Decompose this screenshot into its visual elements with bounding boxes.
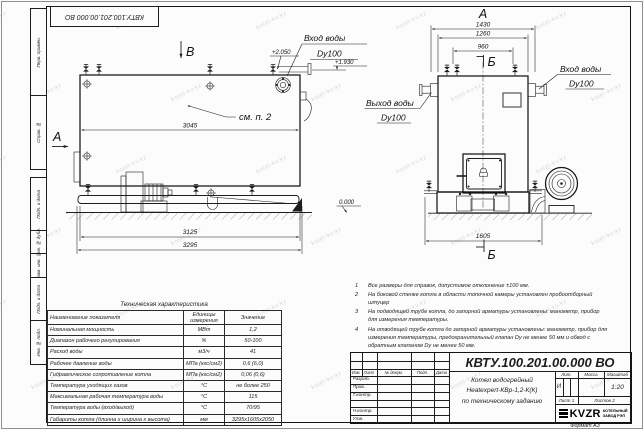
- tech-cell: °С: [184, 403, 225, 414]
- note-item: 3На подводящей трубе котла, до запорной …: [352, 308, 610, 324]
- outlet-text: Выход воды: [366, 98, 415, 108]
- sign-tkontr: Т.контр.: [353, 392, 377, 400]
- note-item: 2На боковой стенке котла в области топоч…: [352, 291, 610, 307]
- tech-row: Рабочее давление водыМПа (кгс/см2)0,6 (6…: [48, 358, 282, 369]
- tech-cell: 3295х1605х2050: [225, 414, 282, 425]
- see-note-leader: см. п. 2: [188, 105, 272, 123]
- dim-960-text: 960: [478, 44, 489, 51]
- rev-header-list: Лист: [362, 369, 377, 376]
- note-text: Все размеры для справок, допустимое откл…: [368, 282, 610, 290]
- label-outlet: Выход воды Dy100: [365, 93, 432, 124]
- furnace-door: [457, 154, 506, 193]
- tech-characteristics: Техническая характеристика Наименование …: [47, 301, 281, 426]
- tech-table-title: Техническая характеристика: [47, 301, 281, 308]
- note-text: На подводящей трубе котла, до запорной а…: [368, 308, 610, 324]
- skid-frame: [78, 196, 302, 212]
- format-label: Формат А3: [540, 423, 630, 429]
- level-1930-text: +1.930: [335, 60, 354, 66]
- tech-header-row: Наименование показателя Единицы измерени…: [48, 311, 282, 325]
- view-b-arrow: В: [181, 41, 194, 59]
- view-b-label: В: [186, 45, 194, 59]
- scale-header: Масштаб: [604, 371, 631, 378]
- tech-cell: Расход воды: [48, 347, 184, 358]
- tech-cell: Диапазон рабочего регулирования: [48, 336, 184, 347]
- tech-cell: Гидравлическое сопротивление котла: [48, 369, 184, 380]
- logo-subtitle-line: ЗАВОД РЭП: [603, 414, 628, 419]
- note-number: 1: [352, 282, 361, 290]
- burner-flange: [276, 78, 291, 93]
- logo-bars-icon: [559, 409, 568, 419]
- tech-header-name: Наименование показателя: [48, 311, 184, 325]
- burner-motor-assembly: [121, 172, 172, 212]
- rev-header-data: Дата: [434, 369, 449, 376]
- tech-header-units: Единицы измерения: [184, 311, 225, 325]
- sign-utv: Утв.: [353, 415, 377, 423]
- outlet-dy: Dy100: [381, 113, 406, 123]
- boiler-side-view: 3045 см. п. 2: [52, 41, 367, 254]
- note-number: 4: [352, 326, 361, 350]
- tech-cell: °С: [184, 380, 225, 391]
- inlet-top-dy: Dy100: [317, 49, 342, 59]
- tech-row: Габариты котла (длинна х ширина х высота…: [48, 414, 282, 425]
- tech-row: Температура воды (вход/выход)°С70/95: [48, 403, 282, 414]
- tech-row: Температура уходящих газов°Сне более 250: [48, 380, 282, 391]
- tech-cell: не более 250: [225, 380, 282, 391]
- label-inlet-top: Вход воды Dy100: [287, 33, 367, 76]
- dim-1605: 1605: [425, 197, 542, 245]
- inlet-right-dy: Dy100: [569, 79, 594, 89]
- dim-3125-text: 3125: [183, 229, 198, 236]
- section-b-top: Б: [477, 55, 496, 69]
- lit-header: Лит.: [555, 371, 578, 378]
- title-block: КВТУ.100.201.00.000 ВО Изм. Лист № докум…: [350, 352, 632, 424]
- sign-prov: Пров.: [353, 384, 377, 392]
- tech-cell: мм: [184, 414, 225, 425]
- rev-header-docnum: № докум.: [377, 369, 412, 376]
- tech-row: Номинальная мощностьМВт1,2: [48, 325, 282, 336]
- section-b-top-label: Б: [488, 55, 496, 69]
- boiler-front-view: А 1430 1260 960 Б: [287, 7, 611, 262]
- label-inlet-right: Вход воды Dy100: [539, 64, 611, 89]
- level-mark-zero: 0.000: [337, 200, 362, 213]
- notes-block: 1Все размеры для справок, допустимое отк…: [352, 282, 610, 351]
- logo-text: KVZR: [570, 408, 601, 420]
- tech-row: Расход водым3/ч41: [48, 347, 282, 358]
- tech-cell: 70/95: [225, 403, 282, 414]
- sign-blank: [353, 400, 377, 408]
- tech-row: Максимальная рабочая температура воды°С1…: [48, 392, 282, 403]
- tech-cell: 1,2: [225, 325, 282, 336]
- sign-nkontr: Н.контр.: [353, 407, 377, 415]
- description-line-3: по техническому заданию: [449, 395, 555, 407]
- note-number: 2: [352, 291, 361, 307]
- drain-hook: [300, 92, 311, 121]
- dim-960: 960: [453, 44, 513, 65]
- dim-1260-text: 1260: [476, 31, 491, 38]
- tech-cell: МВт: [184, 325, 225, 336]
- section-b-bottom-label: Б: [488, 248, 496, 262]
- fan-duct: [530, 190, 545, 214]
- tech-cell: Температура уходящих газов: [48, 380, 184, 391]
- tech-cell: %: [184, 336, 225, 347]
- tech-cell: МПа (кгс/см2): [184, 369, 225, 380]
- view-a-arrow: А: [52, 130, 68, 147]
- view-a-title: А: [478, 7, 487, 21]
- inlet-pipe-side: [279, 64, 311, 75]
- ground-hatch-left: [66, 213, 312, 219]
- rev-header-izm: Изм.: [351, 369, 362, 376]
- dim-3045-text: 3045: [183, 123, 198, 130]
- tech-cell: Рабочее давление воды: [48, 358, 184, 369]
- inspection-hatch: [503, 93, 521, 107]
- tech-cell: 41: [225, 347, 282, 358]
- tech-row: Диапазон рабочего регулирования%50-100: [48, 336, 282, 347]
- ground-hatch-right: [428, 214, 592, 220]
- dim-3295-text: 3295: [183, 242, 198, 249]
- tech-header-value: Значение: [225, 311, 282, 325]
- tech-cell: Номинальная мощность: [48, 325, 184, 336]
- inlet-right-text: Вход воды: [560, 64, 602, 74]
- tech-table: Наименование показателя Единицы измерени…: [47, 310, 282, 426]
- tech-cell: Максимальная рабочая температура воды: [48, 392, 184, 403]
- tech-cell: Температура воды (вход/выход): [48, 403, 184, 414]
- note-text: На боковой стенке котла в области топочн…: [368, 291, 610, 307]
- tech-cell: 50-100: [225, 336, 282, 347]
- note-text: На отводящей трубе котла до запорной арм…: [368, 326, 610, 350]
- dim-3125: 3125: [80, 206, 300, 241]
- mass-header: Масса: [578, 371, 604, 378]
- blower-fan: [546, 168, 578, 214]
- drawing-sheet: kotel-kv.kzkotel-kv.kzkotel-kv.kzkotel-k…: [0, 0, 644, 430]
- tech-row: Гидравлическое сопротивление котлаМПа (к…: [48, 369, 282, 380]
- side-bracket: [74, 152, 80, 182]
- tech-cell: м3/ч: [184, 347, 225, 358]
- level-zero-text: 0.000: [339, 200, 355, 206]
- level-2050-text: +2.050: [272, 50, 291, 56]
- tech-cell: МПа (кгс/см2): [184, 358, 225, 369]
- section-b-bottom: Б: [476, 240, 496, 263]
- tech-cell: Габариты котла (длинна х ширина х высота…: [48, 414, 184, 425]
- note-number: 3: [352, 308, 361, 324]
- logo-subtitle: КОТЕЛЬНЫЙ ЗАВОД РЭП: [603, 409, 628, 418]
- scale-value: 1:20: [604, 378, 631, 396]
- tech-cell: 0,06 (0,6): [225, 369, 282, 380]
- doc-number: КВТУ.100.201.00.000 ВО: [449, 353, 631, 371]
- sheet-cell: Лист 1: [555, 396, 578, 404]
- outlet-flange-left: [420, 84, 439, 97]
- tech-cell: °С: [184, 392, 225, 403]
- note-item: 4На отводящей трубе котла до запорной ар…: [352, 326, 610, 350]
- dim-1430-text: 1430: [476, 22, 491, 29]
- see-note-text: см. п. 2: [239, 112, 272, 123]
- dim-1605-text: 1605: [476, 233, 491, 240]
- sign-razrab: Разраб.: [353, 376, 377, 384]
- tech-cell: 0,6 (6,0): [225, 358, 282, 369]
- level-mark-1930: +1.930: [312, 60, 367, 70]
- note-item: 1Все размеры для справок, допустимое отк…: [352, 282, 610, 290]
- lit-value: И: [555, 378, 563, 396]
- inlet-top-text: Вход воды: [304, 33, 346, 43]
- company-logo: KVZR КОТЕЛЬНЫЙ ЗАВОД РЭП: [555, 404, 631, 423]
- rev-header-podp: Подп.: [411, 369, 434, 376]
- dim-3045: 3045: [82, 123, 299, 131]
- view-a-label: А: [52, 130, 61, 144]
- sheets-cell: Листов 2: [578, 396, 631, 404]
- tech-cell: 115: [225, 392, 282, 403]
